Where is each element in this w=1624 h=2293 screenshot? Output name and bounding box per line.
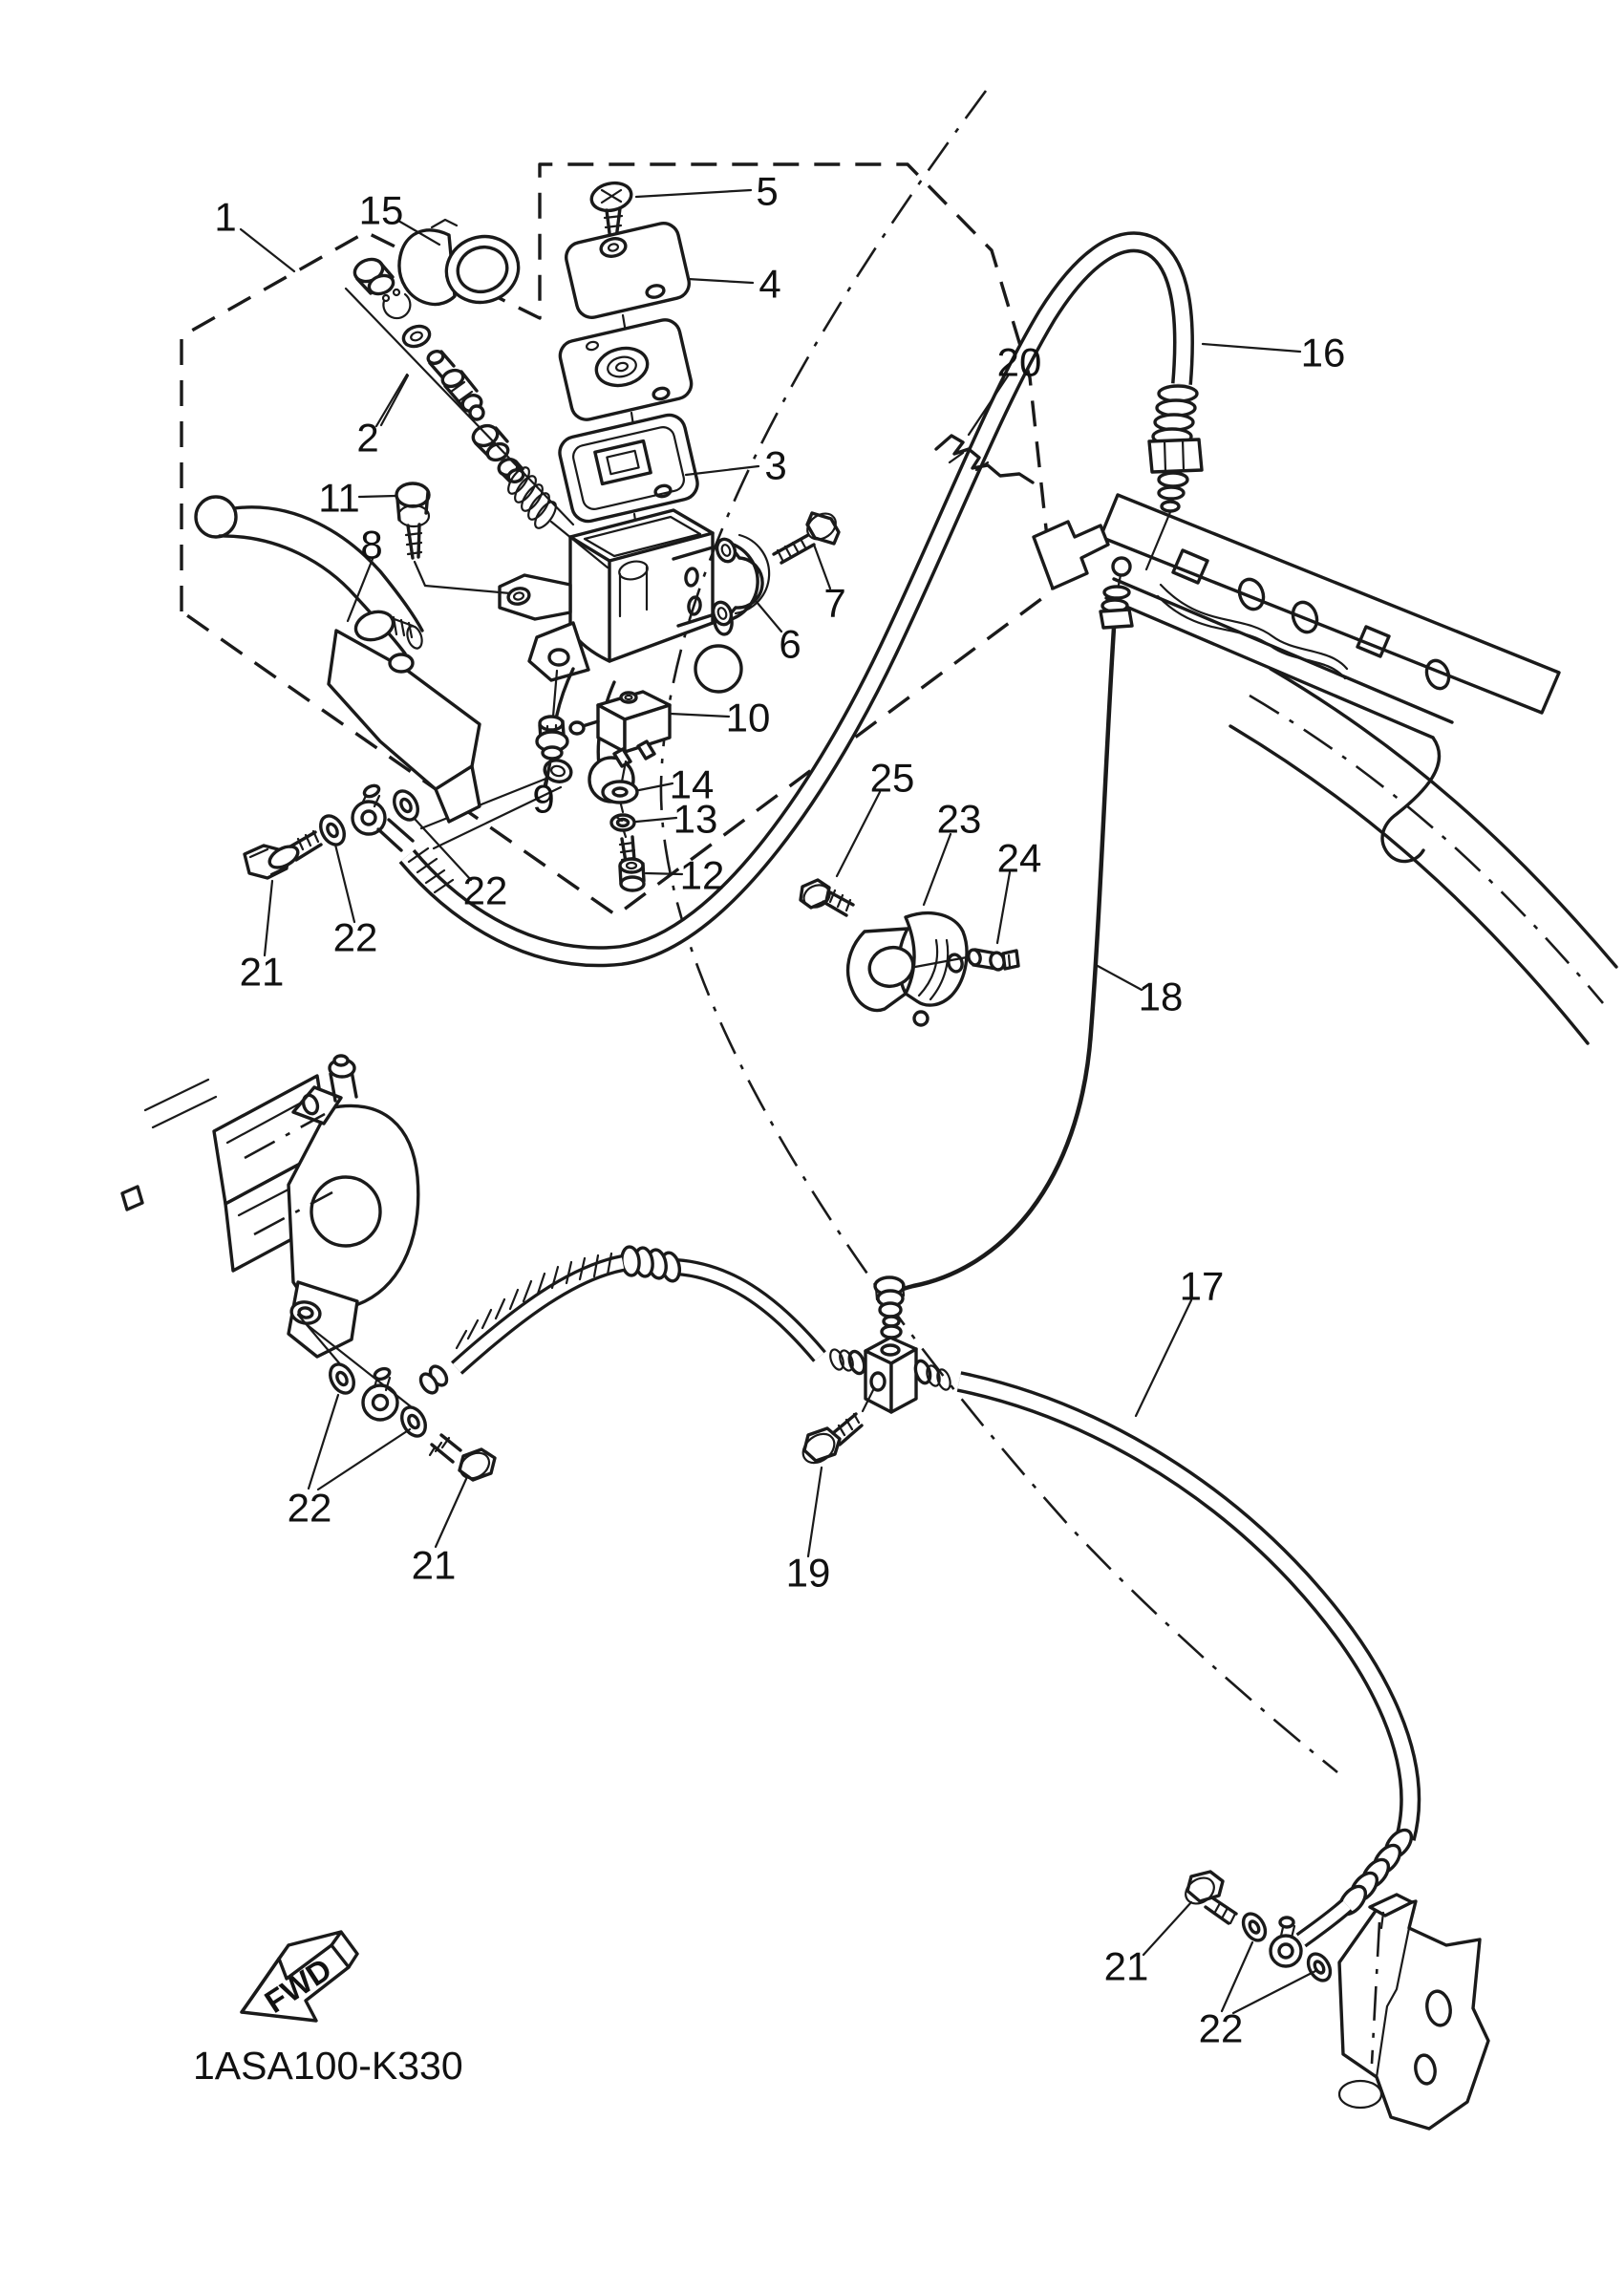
callout-6: 6 xyxy=(779,622,801,667)
callout-21-middle: 21 xyxy=(412,1543,457,1588)
callout-9: 9 xyxy=(532,777,554,822)
callout-13: 13 xyxy=(673,797,718,842)
callout-22-upper-left: 22 xyxy=(333,915,378,960)
callout-2: 2 xyxy=(356,416,378,461)
callout-5: 5 xyxy=(756,169,778,214)
callout-25: 25 xyxy=(870,756,915,801)
callout-22-upper-right: 22 xyxy=(463,868,508,913)
hose-junction-block xyxy=(828,1338,953,1412)
pivot-bolt-11 xyxy=(396,483,510,593)
callout-18: 18 xyxy=(1139,975,1184,1019)
callout-20: 20 xyxy=(997,340,1042,385)
callout-8: 8 xyxy=(360,523,382,568)
callout-3: 3 xyxy=(764,443,786,488)
callout-21-upper: 21 xyxy=(240,950,285,995)
bolt-25 xyxy=(801,880,853,915)
callout-12: 12 xyxy=(680,853,725,898)
callout-11: 11 xyxy=(318,476,360,521)
fwd-arrow: FWD xyxy=(242,1932,357,2021)
bolt-19 xyxy=(798,1390,873,1468)
callout-7: 7 xyxy=(823,581,845,626)
brake-hose-left xyxy=(363,1246,820,1420)
front-master-cylinder-diagram: 1 15 5 4 2 3 11 8 7 6 10 9 14 13 12 22 2… xyxy=(0,0,1624,2293)
washer-14 xyxy=(603,782,637,812)
callout-24: 24 xyxy=(997,836,1042,881)
brake-hose-17 xyxy=(959,1382,1417,1966)
clamp-screw-7 xyxy=(774,508,841,563)
callout-4: 4 xyxy=(759,262,780,307)
callout-1: 1 xyxy=(214,195,236,240)
parts-diagram-page: 1 15 5 4 2 3 11 8 7 6 10 9 14 13 12 22 2… xyxy=(0,0,1624,2293)
lock-washer-13 xyxy=(611,815,634,837)
clamp-half-6 xyxy=(710,535,769,627)
callout-10: 10 xyxy=(726,696,771,740)
callout-17: 17 xyxy=(1180,1264,1225,1309)
callout-16: 16 xyxy=(1301,331,1346,375)
screw-12 xyxy=(620,837,644,890)
handlebar xyxy=(1230,669,1616,1043)
left-brake-caliper xyxy=(122,1056,418,1357)
diagram-code: 1ASA100-K330 xyxy=(193,2044,463,2088)
callout-22-bottom: 22 xyxy=(1199,2006,1244,2051)
callout-22-middle: 22 xyxy=(288,1486,332,1531)
callout-19: 19 xyxy=(786,1551,831,1596)
banjo-bolt-21-upper xyxy=(245,783,422,878)
right-brake-caliper xyxy=(1339,1895,1488,2129)
callout-15: 15 xyxy=(359,188,404,233)
brake-lever-8 xyxy=(196,497,480,822)
plug-24 xyxy=(967,949,1018,972)
clamp-23 xyxy=(848,913,967,1025)
callout-23: 23 xyxy=(937,797,982,842)
callout-21-bottom: 21 xyxy=(1104,1944,1149,1989)
